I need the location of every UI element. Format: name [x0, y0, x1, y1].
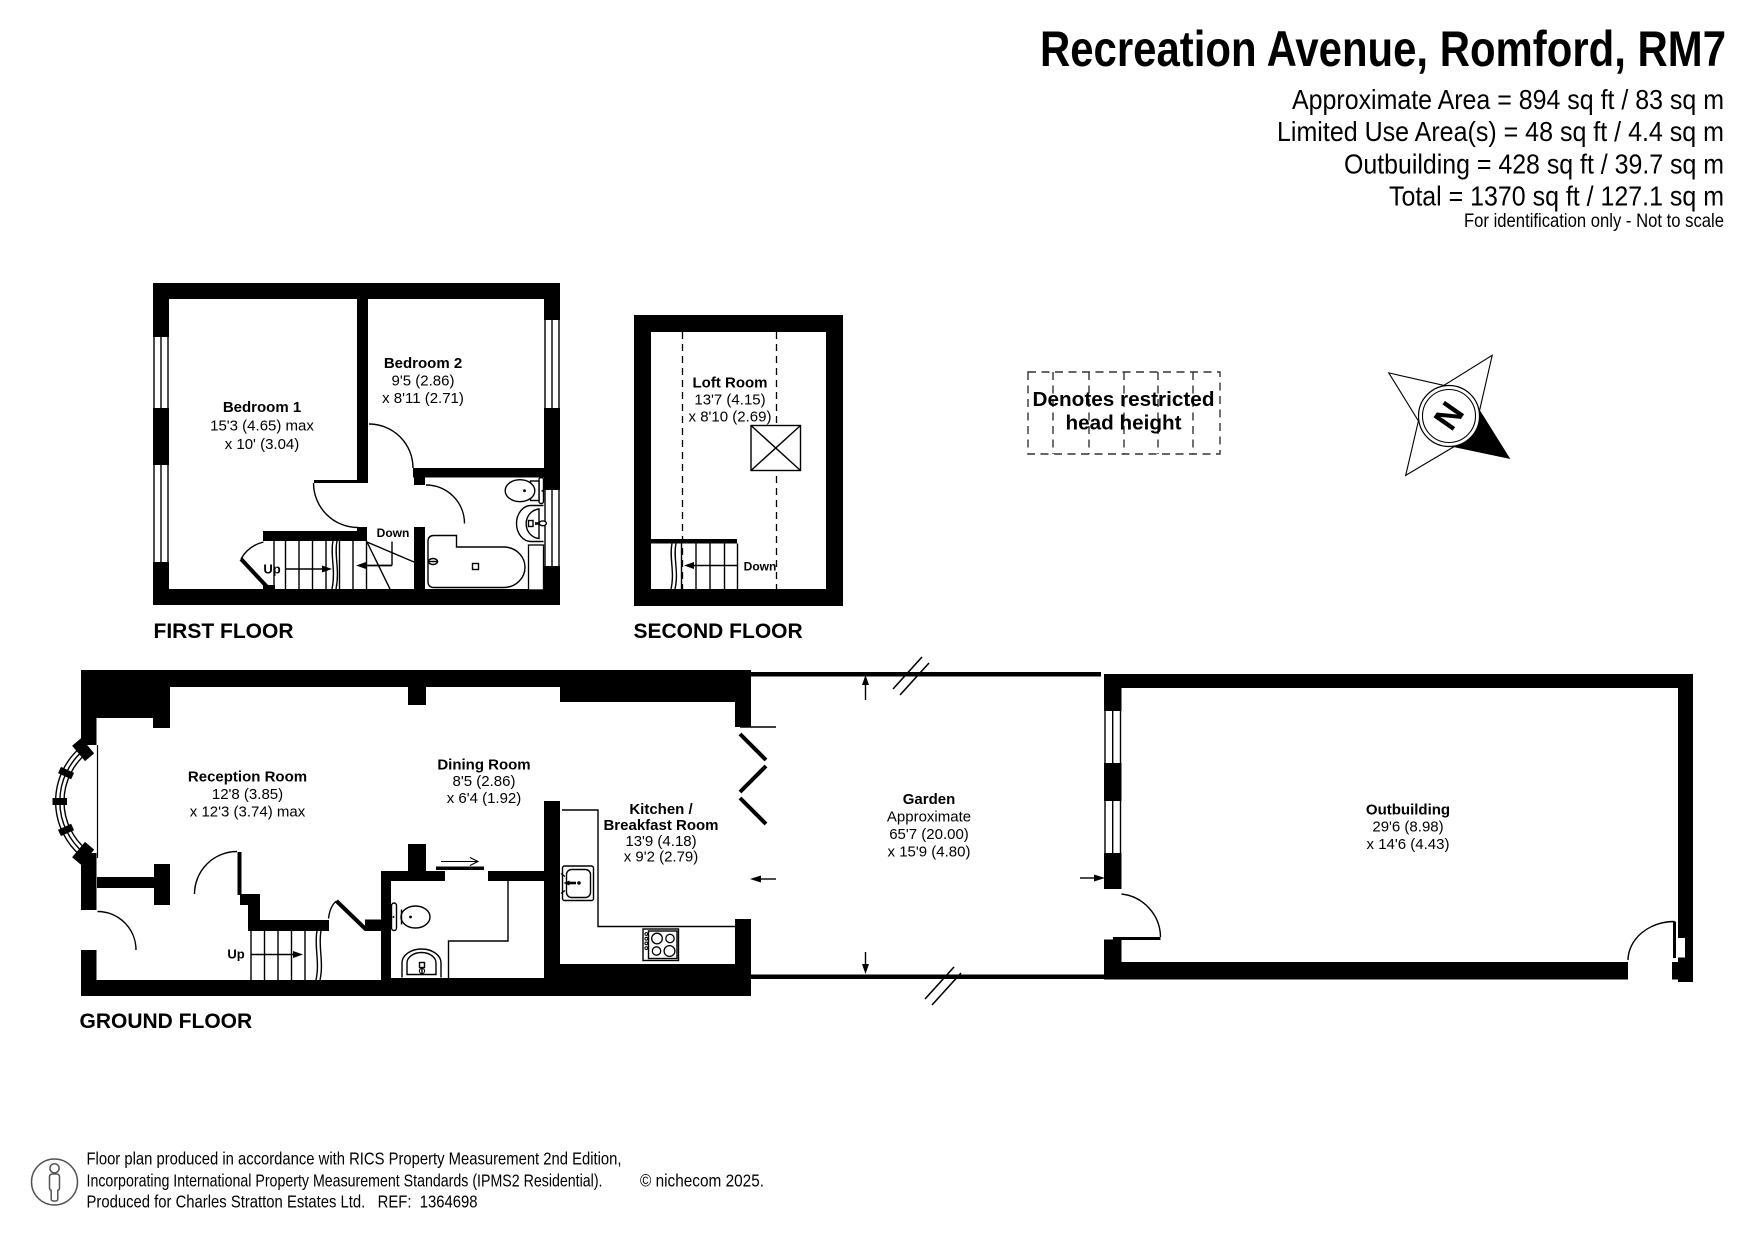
svg-text:Up: Up	[227, 947, 244, 962]
svg-text:Outbuilding: Outbuilding	[1366, 802, 1450, 819]
svg-text:Recreation Avenue, Romford, RM: Recreation Avenue, Romford, RM7	[1040, 21, 1726, 77]
svg-text:8'5 (2.86): 8'5 (2.86)	[453, 773, 516, 790]
svg-text:x 9'2 (2.79): x 9'2 (2.79)	[624, 849, 699, 866]
svg-text:Bedroom 1: Bedroom 1	[223, 399, 301, 416]
svg-text:Reception Room: Reception Room	[188, 769, 307, 786]
svg-text:65'7 (20.00): 65'7 (20.00)	[889, 826, 969, 843]
svg-text:x 8'10 (2.69): x 8'10 (2.69)	[689, 409, 772, 426]
svg-text:SECOND FLOOR: SECOND FLOOR	[634, 620, 803, 643]
svg-text:Down: Down	[377, 526, 410, 540]
svg-text:Outbuilding = 428 sq ft / 39.7: Outbuilding = 428 sq ft / 39.7 sq m	[1344, 149, 1724, 180]
svg-text:13'7 (4.15): 13'7 (4.15)	[694, 392, 765, 409]
svg-text:x 12'3 (3.74) max: x 12'3 (3.74) max	[190, 804, 306, 821]
svg-text:Limited Use Area(s) = 48 sq ft: Limited Use Area(s) = 48 sq ft / 4.4 sq …	[1277, 116, 1724, 147]
svg-text:Dining Room: Dining Room	[437, 757, 530, 774]
svg-text:Down: Down	[744, 560, 777, 574]
svg-text:15'3 (4.65) max: 15'3 (4.65) max	[210, 418, 314, 435]
svg-text:Incorporating International Pr: Incorporating International Property Mea…	[87, 1171, 603, 1191]
svg-text:Approximate: Approximate	[887, 809, 971, 826]
svg-text:x 10' (3.04): x 10' (3.04)	[225, 436, 300, 453]
svg-text:x 14'6 (4.43): x 14'6 (4.43)	[1367, 836, 1450, 853]
svg-text:9'5 (2.86): 9'5 (2.86)	[392, 373, 455, 390]
svg-text:Up: Up	[263, 562, 280, 577]
svg-text:x 15'9 (4.80): x 15'9 (4.80)	[888, 844, 971, 861]
svg-text:12'8 (3.85): 12'8 (3.85)	[212, 786, 283, 803]
svg-text:Denotes restricted: Denotes restricted	[1033, 389, 1215, 411]
svg-text:Approximate Area = 894 sq ft /: Approximate Area = 894 sq ft / 83 sq m	[1292, 84, 1724, 115]
svg-text:13'9 (4.18): 13'9 (4.18)	[625, 833, 696, 850]
svg-text:head height: head height	[1066, 413, 1182, 435]
svg-text:For identification only - Not: For identification only - Not to scale	[1464, 210, 1724, 232]
svg-text:Kitchen /: Kitchen /	[629, 801, 693, 818]
svg-text:x 8'11 (2.71): x 8'11 (2.71)	[382, 390, 464, 407]
svg-text:FIRST FLOOR: FIRST FLOOR	[154, 620, 294, 643]
svg-text:Breakfast Room: Breakfast Room	[603, 817, 718, 834]
svg-text:Total = 1370 sq ft / 127.1 sq: Total = 1370 sq ft / 127.1 sq m	[1389, 181, 1724, 212]
svg-text:Produced for Charles Stratton: Produced for Charles Stratton Estates Lt…	[87, 1192, 478, 1212]
svg-text:x 6'4 (1.92): x 6'4 (1.92)	[447, 790, 522, 807]
svg-text:GROUND FLOOR: GROUND FLOOR	[80, 1010, 253, 1033]
svg-text:Bedroom 2: Bedroom 2	[384, 355, 462, 372]
svg-text:Floor plan produced in accorda: Floor plan produced in accordance with R…	[87, 1149, 622, 1169]
svg-text:Loft Room: Loft Room	[693, 375, 768, 392]
svg-text:29'6 (8.98): 29'6 (8.98)	[1372, 819, 1443, 836]
svg-text:© nichecom 2025.: © nichecom 2025.	[640, 1171, 764, 1191]
svg-text:Garden: Garden	[903, 791, 956, 808]
